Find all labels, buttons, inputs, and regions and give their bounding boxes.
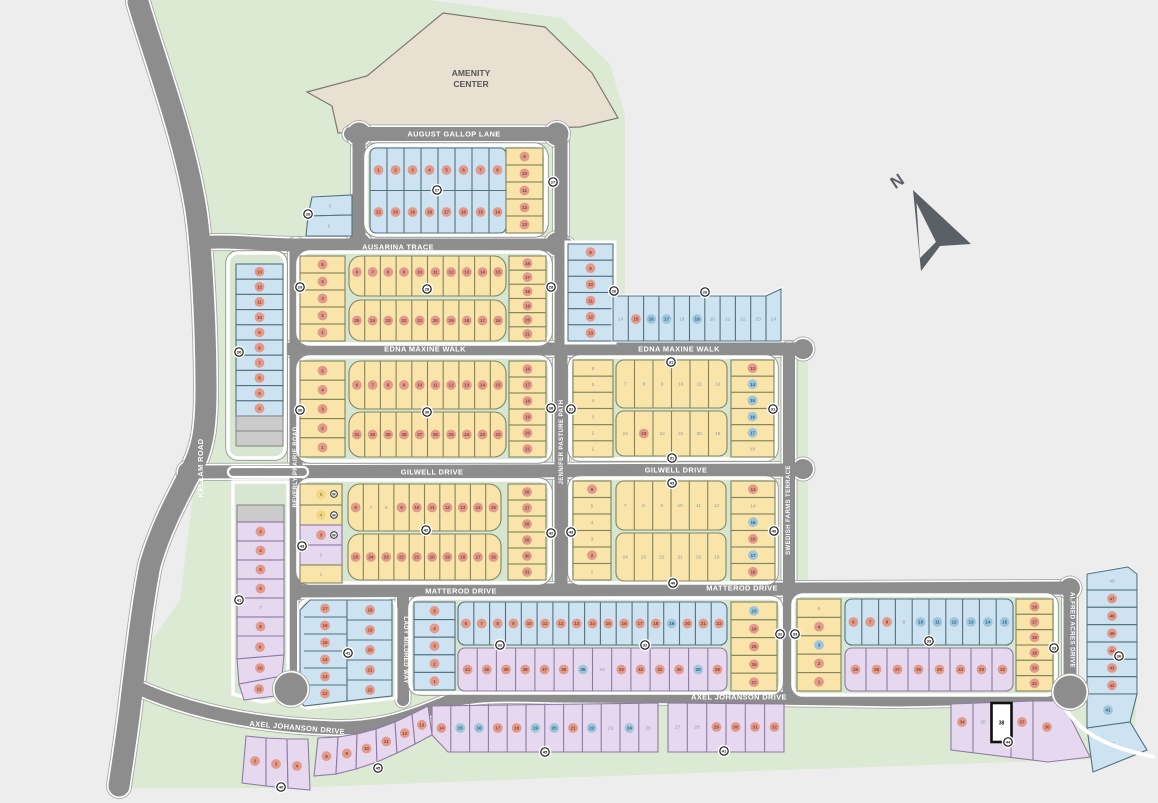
svg-text:25: 25 <box>751 644 757 649</box>
svg-text:4: 4 <box>428 168 431 173</box>
svg-text:5: 5 <box>259 567 262 572</box>
svg-text:12: 12 <box>558 621 564 626</box>
svg-text:M: M <box>332 534 335 538</box>
svg-text:18: 18 <box>679 317 685 323</box>
svg-text:12: 12 <box>449 383 455 388</box>
svg-text:24: 24 <box>751 626 757 631</box>
svg-text:16: 16 <box>476 726 482 731</box>
svg-text:18: 18 <box>525 399 531 404</box>
svg-text:26: 26 <box>751 662 757 667</box>
svg-text:14: 14 <box>495 210 501 215</box>
svg-text:12: 12 <box>257 285 263 290</box>
svg-text:21: 21 <box>725 317 731 323</box>
svg-text:2: 2 <box>591 553 594 558</box>
svg-text:22: 22 <box>740 317 746 323</box>
svg-text:5: 5 <box>320 492 323 497</box>
svg-text:9: 9 <box>346 751 349 756</box>
svg-text:16: 16 <box>1032 604 1038 609</box>
svg-text:10: 10 <box>257 315 263 320</box>
svg-text:24: 24 <box>771 317 777 323</box>
svg-text:8: 8 <box>496 621 499 626</box>
svg-text:16: 16 <box>750 414 756 419</box>
svg-text:16: 16 <box>750 537 756 542</box>
svg-text:10: 10 <box>257 666 263 671</box>
svg-text:34: 34 <box>599 667 605 673</box>
svg-text:18: 18 <box>427 210 433 215</box>
svg-text:6: 6 <box>465 621 468 626</box>
svg-text:31: 31 <box>752 725 758 730</box>
svg-text:17: 17 <box>750 553 756 558</box>
svg-text:22: 22 <box>1000 667 1006 672</box>
svg-text:20: 20 <box>433 318 439 323</box>
svg-text:18: 18 <box>367 608 373 613</box>
svg-text:25: 25 <box>937 667 943 672</box>
svg-text:3: 3 <box>321 407 324 412</box>
svg-text:10: 10 <box>678 503 684 509</box>
svg-text:29: 29 <box>524 538 530 543</box>
svg-text:27: 27 <box>895 667 901 672</box>
svg-text:41: 41 <box>237 598 242 603</box>
svg-text:23: 23 <box>641 431 647 436</box>
svg-text:5: 5 <box>321 262 324 267</box>
svg-text:EDNA MAXINE WALK: EDNA MAXINE WALK <box>638 345 720 354</box>
svg-text:24: 24 <box>623 555 629 561</box>
svg-text:9: 9 <box>512 621 515 626</box>
svg-text:14: 14 <box>750 382 756 387</box>
svg-text:7: 7 <box>624 382 627 388</box>
svg-text:21: 21 <box>417 318 423 323</box>
svg-text:7: 7 <box>259 605 262 611</box>
svg-text:36: 36 <box>1044 725 1050 730</box>
svg-text:2: 2 <box>254 759 257 764</box>
svg-text:17: 17 <box>525 383 531 388</box>
svg-text:15: 15 <box>606 621 612 626</box>
svg-text:3: 3 <box>320 533 323 538</box>
svg-text:9: 9 <box>523 154 526 159</box>
svg-text:10: 10 <box>918 620 924 625</box>
svg-text:48: 48 <box>1109 579 1115 585</box>
svg-text:24: 24 <box>370 318 376 323</box>
svg-text:45: 45 <box>1109 631 1115 636</box>
svg-text:43: 43 <box>569 530 574 535</box>
svg-text:28: 28 <box>401 432 407 437</box>
svg-text:1: 1 <box>818 680 821 685</box>
svg-text:15: 15 <box>496 383 502 388</box>
svg-text:37: 37 <box>542 667 548 672</box>
svg-text:19: 19 <box>714 555 720 561</box>
svg-text:27: 27 <box>435 188 440 193</box>
svg-text:16: 16 <box>491 555 497 560</box>
svg-text:40: 40 <box>484 667 490 672</box>
svg-text:10: 10 <box>417 383 423 388</box>
svg-text:3: 3 <box>433 644 436 649</box>
svg-text:19: 19 <box>525 303 531 308</box>
svg-text:19: 19 <box>715 431 721 437</box>
svg-text:15: 15 <box>458 726 464 731</box>
svg-text:13: 13 <box>464 383 470 388</box>
svg-text:22: 22 <box>660 431 666 437</box>
svg-text:27: 27 <box>675 725 681 731</box>
svg-text:9: 9 <box>661 382 664 388</box>
svg-text:27: 27 <box>417 432 423 437</box>
svg-text:14: 14 <box>750 504 756 510</box>
svg-text:20: 20 <box>710 317 716 323</box>
svg-text:3: 3 <box>321 296 324 301</box>
svg-text:24: 24 <box>368 555 374 560</box>
svg-text:14: 14 <box>480 383 486 388</box>
svg-text:2: 2 <box>433 661 436 666</box>
svg-text:22: 22 <box>367 688 373 693</box>
svg-text:31: 31 <box>669 360 674 365</box>
svg-text:12: 12 <box>952 620 958 625</box>
svg-text:21: 21 <box>1032 681 1038 686</box>
svg-text:32: 32 <box>643 643 648 648</box>
svg-text:30: 30 <box>733 725 739 730</box>
svg-text:2: 2 <box>328 224 331 230</box>
svg-text:9: 9 <box>258 330 261 335</box>
svg-text:12: 12 <box>715 382 721 388</box>
svg-text:2: 2 <box>394 168 397 173</box>
svg-text:3: 3 <box>259 529 262 534</box>
svg-text:21: 21 <box>678 431 684 437</box>
svg-text:6: 6 <box>354 505 357 510</box>
svg-text:6: 6 <box>259 586 262 591</box>
svg-text:4: 4 <box>321 388 324 393</box>
svg-text:28: 28 <box>874 667 880 672</box>
svg-text:13: 13 <box>574 621 580 626</box>
svg-text:1: 1 <box>591 570 594 576</box>
svg-text:5: 5 <box>818 606 821 612</box>
svg-text:20: 20 <box>430 555 436 560</box>
svg-text:7: 7 <box>624 503 627 509</box>
svg-text:30: 30 <box>370 432 376 437</box>
svg-text:18: 18 <box>525 289 531 294</box>
svg-text:41: 41 <box>346 651 351 656</box>
svg-text:9: 9 <box>660 503 663 509</box>
svg-text:32: 32 <box>778 632 783 637</box>
svg-text:16: 16 <box>322 623 328 628</box>
svg-text:19: 19 <box>410 210 416 215</box>
svg-text:4: 4 <box>592 398 595 404</box>
svg-text:29: 29 <box>853 667 859 672</box>
svg-text:8: 8 <box>325 754 328 759</box>
svg-text:4: 4 <box>258 406 261 411</box>
svg-text:12: 12 <box>449 270 455 275</box>
svg-text:11: 11 <box>433 383 438 388</box>
svg-text:AUGUST GALLOP LANE: AUGUST GALLOP LANE <box>407 130 500 139</box>
svg-text:7: 7 <box>371 383 374 388</box>
svg-text:MATTEROD DRIVE: MATTEROD DRIVE <box>706 584 778 593</box>
svg-text:10: 10 <box>414 505 420 510</box>
svg-text:12: 12 <box>714 503 720 509</box>
svg-text:3: 3 <box>275 762 278 767</box>
svg-text:9: 9 <box>403 383 406 388</box>
svg-text:26: 26 <box>433 432 439 437</box>
svg-text:10: 10 <box>678 382 684 388</box>
svg-text:11: 11 <box>522 188 527 193</box>
svg-text:31: 31 <box>569 407 574 412</box>
svg-text:41: 41 <box>465 667 471 672</box>
svg-text:22: 22 <box>399 555 405 560</box>
svg-text:28: 28 <box>425 287 430 292</box>
svg-text:10: 10 <box>588 282 594 287</box>
svg-text:AUSARINA TRACE: AUSARINA TRACE <box>362 243 434 252</box>
svg-text:28: 28 <box>549 285 554 290</box>
svg-text:6: 6 <box>591 487 594 492</box>
svg-text:18: 18 <box>653 621 659 626</box>
svg-text:45: 45 <box>376 766 381 771</box>
svg-text:3: 3 <box>592 414 595 420</box>
svg-text:5: 5 <box>591 504 594 510</box>
svg-text:11: 11 <box>588 298 593 303</box>
svg-text:13: 13 <box>419 723 425 728</box>
svg-text:47: 47 <box>1109 596 1115 601</box>
svg-text:4: 4 <box>259 548 262 553</box>
svg-text:21: 21 <box>525 332 531 337</box>
svg-text:21: 21 <box>367 668 373 673</box>
svg-text:19: 19 <box>1032 650 1038 655</box>
svg-text:5: 5 <box>321 368 324 373</box>
svg-text:46: 46 <box>1109 614 1115 619</box>
svg-text:18: 18 <box>464 318 470 323</box>
svg-text:12: 12 <box>588 315 594 320</box>
svg-text:23: 23 <box>751 609 757 614</box>
svg-text:13: 13 <box>588 331 594 336</box>
svg-text:4: 4 <box>320 513 323 518</box>
svg-text:9: 9 <box>589 266 592 271</box>
svg-text:AXEL JOHANSON DRIVE: AXEL JOHANSON DRIVE <box>691 693 787 702</box>
svg-text:27: 27 <box>751 680 757 685</box>
svg-text:19: 19 <box>449 318 455 323</box>
svg-text:3: 3 <box>591 537 594 543</box>
svg-text:23: 23 <box>641 555 647 561</box>
svg-text:20: 20 <box>697 431 703 437</box>
svg-text:14: 14 <box>590 621 596 626</box>
svg-text:7: 7 <box>258 361 261 366</box>
svg-text:12: 12 <box>522 205 528 210</box>
svg-text:2: 2 <box>818 661 821 666</box>
svg-text:10: 10 <box>527 621 533 626</box>
svg-text:LADY MILDRED WAY: LADY MILDRED WAY <box>402 616 409 683</box>
svg-text:15: 15 <box>750 398 756 403</box>
svg-text:42: 42 <box>424 528 429 533</box>
svg-text:19: 19 <box>445 555 451 560</box>
svg-text:11: 11 <box>696 503 701 509</box>
svg-text:13: 13 <box>257 269 263 274</box>
svg-text:14: 14 <box>480 270 486 275</box>
svg-text:20: 20 <box>552 726 558 731</box>
svg-text:38: 38 <box>999 721 1005 727</box>
svg-text:22: 22 <box>401 318 407 323</box>
svg-text:18: 18 <box>750 447 756 453</box>
svg-text:18: 18 <box>1032 635 1038 640</box>
svg-text:6: 6 <box>592 366 595 372</box>
svg-text:13: 13 <box>522 222 528 227</box>
svg-text:16: 16 <box>622 621 628 626</box>
svg-text:18: 18 <box>750 570 756 575</box>
svg-text:19: 19 <box>525 415 531 420</box>
svg-text:9: 9 <box>902 620 905 626</box>
svg-text:21: 21 <box>701 621 707 626</box>
svg-text:15: 15 <box>491 505 497 510</box>
svg-text:24: 24 <box>627 726 633 731</box>
svg-text:17: 17 <box>480 318 486 323</box>
svg-text:EDNA MAXINE WALK: EDNA MAXINE WALK <box>384 345 466 354</box>
svg-text:18: 18 <box>514 726 520 731</box>
svg-text:32: 32 <box>638 667 644 672</box>
svg-text:3: 3 <box>411 168 414 173</box>
svg-text:8: 8 <box>259 624 262 629</box>
svg-text:31: 31 <box>524 570 530 575</box>
svg-text:31: 31 <box>670 456 675 461</box>
svg-text:33: 33 <box>793 632 798 637</box>
svg-text:20: 20 <box>685 621 691 626</box>
svg-text:9: 9 <box>259 645 262 650</box>
svg-text:7: 7 <box>869 620 872 625</box>
svg-text:32: 32 <box>498 643 503 648</box>
svg-text:17: 17 <box>1032 620 1038 625</box>
svg-text:8: 8 <box>886 620 889 625</box>
svg-text:18: 18 <box>460 555 466 560</box>
svg-text:6: 6 <box>356 270 359 275</box>
svg-text:11: 11 <box>543 621 548 626</box>
svg-text:9: 9 <box>400 505 403 510</box>
svg-text:20: 20 <box>696 555 702 561</box>
svg-text:SWEDISH FARMS TERRACE: SWEDISH FARMS TERRACE <box>786 465 792 555</box>
svg-text:21: 21 <box>570 726 576 731</box>
svg-text:29: 29 <box>298 285 303 290</box>
svg-text:45: 45 <box>543 750 548 755</box>
svg-text:10: 10 <box>522 171 528 176</box>
svg-text:28: 28 <box>694 725 700 731</box>
svg-text:26: 26 <box>306 212 311 217</box>
svg-text:22: 22 <box>496 432 502 437</box>
svg-text:23: 23 <box>608 726 614 732</box>
svg-text:14: 14 <box>618 317 624 323</box>
svg-text:5: 5 <box>258 391 261 396</box>
svg-text:30: 30 <box>425 410 430 415</box>
svg-text:10: 10 <box>417 270 423 275</box>
svg-text:11: 11 <box>430 505 435 510</box>
svg-text:36: 36 <box>561 667 567 672</box>
svg-text:11: 11 <box>257 687 262 692</box>
svg-text:21: 21 <box>678 555 684 561</box>
svg-text:15: 15 <box>496 270 502 275</box>
svg-text:27: 27 <box>524 506 530 511</box>
svg-text:13: 13 <box>460 505 466 510</box>
svg-text:13: 13 <box>968 620 974 625</box>
svg-text:14: 14 <box>475 505 481 510</box>
svg-text:8: 8 <box>496 168 499 173</box>
svg-text:15: 15 <box>1002 620 1008 625</box>
svg-text:1: 1 <box>320 572 323 578</box>
svg-text:8: 8 <box>589 250 592 255</box>
svg-text:5: 5 <box>445 168 448 173</box>
svg-text:17: 17 <box>444 210 450 215</box>
svg-text:31: 31 <box>657 667 663 672</box>
svg-text:44: 44 <box>1006 740 1011 745</box>
svg-text:13: 13 <box>750 487 756 492</box>
svg-text:20: 20 <box>525 318 531 323</box>
svg-text:2: 2 <box>592 431 595 437</box>
svg-text:11: 11 <box>257 300 262 305</box>
svg-text:30: 30 <box>676 667 682 672</box>
svg-text:33: 33 <box>1052 646 1057 651</box>
svg-text:1: 1 <box>433 679 436 684</box>
svg-text:35: 35 <box>980 720 986 726</box>
svg-text:MATTEROD DRIVE: MATTEROD DRIVE <box>425 587 497 596</box>
svg-text:23: 23 <box>386 318 392 323</box>
svg-text:20: 20 <box>525 431 531 436</box>
svg-text:15: 15 <box>750 520 756 525</box>
svg-text:ALFRED ACRES DRIVE: ALFRED ACRES DRIVE <box>1069 592 1076 668</box>
svg-text:12: 12 <box>322 691 328 696</box>
svg-text:24: 24 <box>623 431 629 437</box>
svg-text:AMENITY: AMENITY <box>452 68 491 78</box>
svg-text:25: 25 <box>354 318 360 323</box>
svg-text:42: 42 <box>1109 683 1115 688</box>
svg-text:16: 16 <box>649 317 655 322</box>
svg-text:8: 8 <box>642 382 645 388</box>
svg-text:15: 15 <box>322 640 328 645</box>
svg-text:3: 3 <box>329 204 332 210</box>
svg-text:31: 31 <box>771 407 776 412</box>
svg-text:28: 28 <box>524 522 530 527</box>
svg-text:11: 11 <box>935 620 940 625</box>
svg-text:41: 41 <box>722 749 727 754</box>
svg-text:22: 22 <box>589 726 595 731</box>
svg-text:15: 15 <box>478 210 484 215</box>
svg-text:20: 20 <box>1032 666 1038 671</box>
svg-text:M: M <box>332 514 335 518</box>
svg-text:13: 13 <box>322 674 328 679</box>
svg-text:23: 23 <box>384 555 390 560</box>
svg-text:14: 14 <box>322 657 328 662</box>
svg-text:23: 23 <box>480 432 486 437</box>
svg-text:30: 30 <box>237 350 242 355</box>
svg-text:27: 27 <box>551 180 556 185</box>
svg-text:GILWELL DRIVE: GILWELL DRIVE <box>401 468 464 477</box>
svg-text:38: 38 <box>523 667 529 672</box>
svg-text:32: 32 <box>772 725 778 730</box>
svg-text:40: 40 <box>279 785 284 790</box>
svg-text:31: 31 <box>354 432 360 437</box>
svg-text:9: 9 <box>403 270 406 275</box>
svg-text:41: 41 <box>1105 708 1111 713</box>
svg-text:7: 7 <box>480 621 483 626</box>
svg-text:21: 21 <box>414 555 420 560</box>
svg-text:2: 2 <box>321 426 324 431</box>
svg-text:CENTER: CENTER <box>453 79 489 89</box>
svg-text:42: 42 <box>549 531 554 536</box>
svg-text:GILWELL DRIVE: GILWELL DRIVE <box>645 466 708 475</box>
svg-text:6: 6 <box>852 620 855 625</box>
svg-text:19: 19 <box>367 628 373 633</box>
svg-text:8: 8 <box>385 505 388 511</box>
svg-text:4: 4 <box>296 764 299 769</box>
svg-text:7: 7 <box>370 505 373 511</box>
svg-text:29: 29 <box>386 432 392 437</box>
svg-text:1: 1 <box>321 330 324 335</box>
svg-text:22: 22 <box>717 621 723 626</box>
svg-text:33: 33 <box>927 639 932 644</box>
svg-text:8: 8 <box>387 383 390 388</box>
svg-text:7: 7 <box>371 270 374 275</box>
svg-text:KELLAM ROAD: KELLAM ROAD <box>196 438 205 497</box>
svg-text:7: 7 <box>479 168 482 173</box>
svg-text:19: 19 <box>533 726 539 731</box>
svg-text:1: 1 <box>377 168 380 173</box>
